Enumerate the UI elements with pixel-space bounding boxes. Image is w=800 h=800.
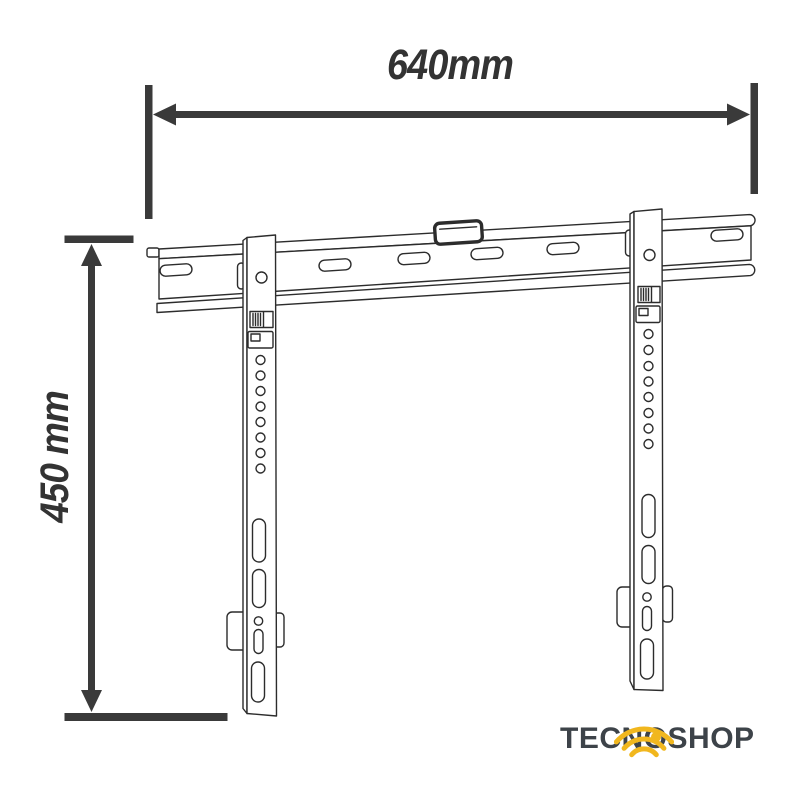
width-dimension-label: 640mm <box>362 42 538 88</box>
mounting-slot <box>398 252 431 265</box>
right-arm-bottom-tab-right <box>663 586 673 622</box>
wall-rail <box>147 215 755 313</box>
width-dim-line <box>170 111 733 118</box>
mounting-slot <box>160 263 193 276</box>
height-dim-arrowhead-bottom <box>81 690 102 712</box>
tecnoshop-logo: TECNO SHOP <box>560 721 755 757</box>
width-dim-arrowhead-right <box>727 104 750 126</box>
right-arm-tab-hole <box>643 593 651 601</box>
left-arm-slot <box>252 662 265 702</box>
rail-left-lip <box>147 248 159 257</box>
right-arm-slot <box>642 495 655 538</box>
height-dim-line <box>88 262 95 694</box>
mounting-slot <box>711 228 744 241</box>
right-arm-slot <box>641 639 654 679</box>
left-arm-rail-hole <box>256 272 267 283</box>
width-dim-arrowhead-left <box>153 104 176 126</box>
width-dim-left-tick <box>145 85 153 219</box>
height-dim-arrowhead-top <box>81 244 102 266</box>
logo-o: O <box>644 721 668 756</box>
mounting-slot <box>319 258 352 271</box>
left-arm-tab-slot <box>254 630 263 654</box>
height-dim-bottom-tick <box>65 713 228 721</box>
height-dim-top-tick <box>65 236 134 244</box>
left-arm-tab-hole <box>254 617 262 625</box>
center-clip <box>434 220 482 244</box>
mounting-slot <box>547 242 580 255</box>
mounting-slot <box>471 247 504 260</box>
height-dimension-label: 450 mm <box>33 365 77 549</box>
right-arm-tab-slot <box>643 607 652 631</box>
wifi-arcs-icon <box>614 721 674 761</box>
left-arm-slot <box>253 519 266 562</box>
logo-text-right: SHOP <box>668 722 755 755</box>
left-arm-slot <box>253 570 266 608</box>
width-dim-right-tick <box>751 83 759 194</box>
width-dimension-arrow <box>145 83 758 219</box>
bracket-drawing <box>147 209 755 716</box>
right-arm-rail-hole <box>644 250 655 261</box>
right-arm-slot <box>642 546 655 584</box>
product-dimension-diagram: 640mm 450 mm TECNO SHOP <box>0 0 800 800</box>
diagram-artwork <box>0 0 800 800</box>
